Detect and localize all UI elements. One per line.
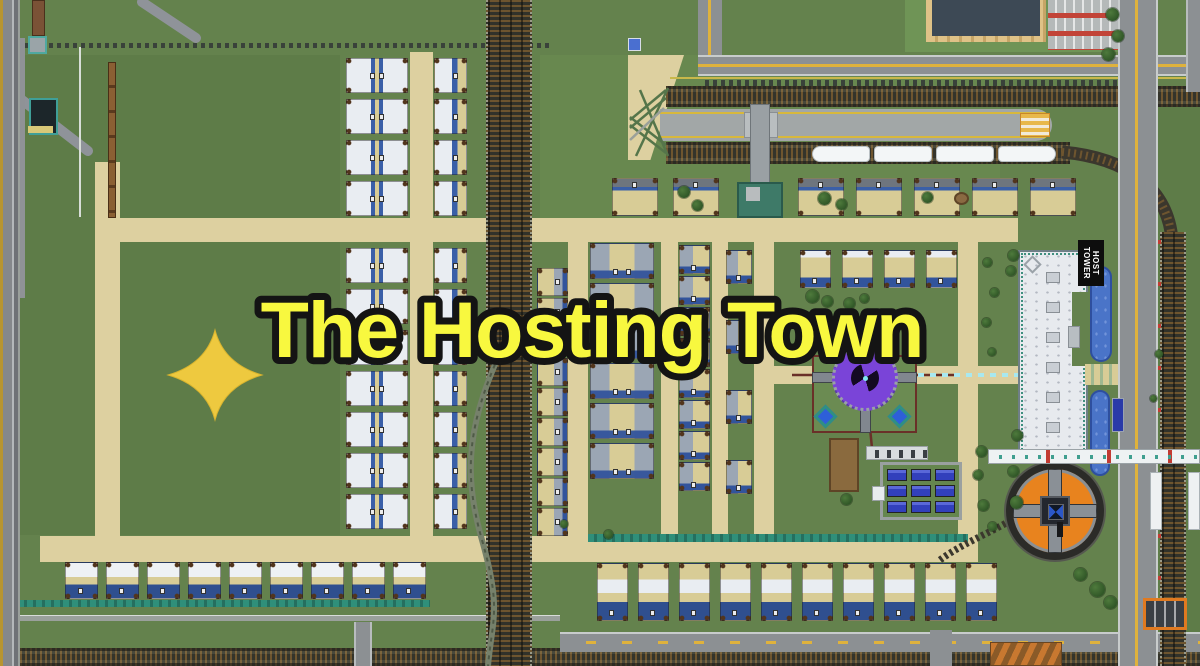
map-title-text: The Hosting Town xyxy=(261,285,924,374)
minecraft-map-canvas: HOST TOWER The Hosting Town xyxy=(0,0,1200,666)
title-layer: The Hosting Town xyxy=(0,0,1200,666)
